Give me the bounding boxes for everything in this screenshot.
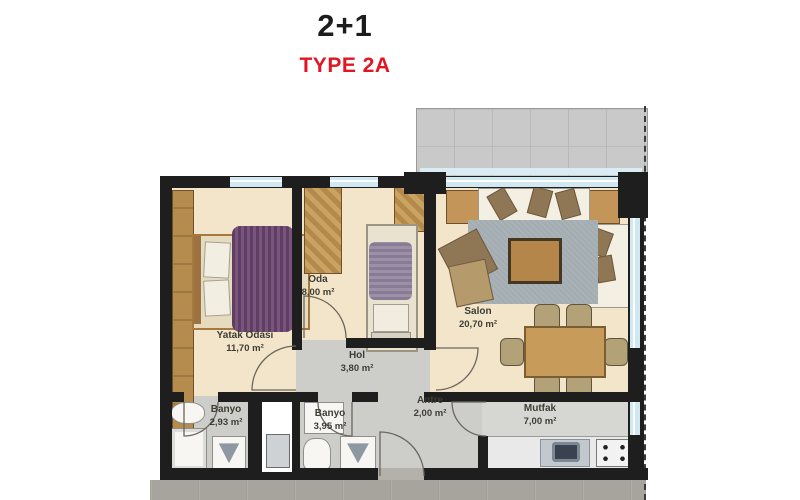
plan-type-label: TYPE 2A (255, 54, 435, 78)
label-oda: Oda 8,00 m² (288, 274, 348, 298)
room-area: 20,70 m² (446, 319, 510, 331)
room-area: 2,00 m² (398, 408, 462, 420)
dining-chair (604, 338, 628, 366)
pillow (203, 279, 231, 316)
wall-balcony-right-pier (618, 172, 648, 218)
sink-basin (347, 443, 369, 463)
window-bedroom (230, 177, 282, 187)
bathtub (171, 428, 207, 470)
room-name: Mutfak (524, 403, 556, 414)
pillow (203, 241, 231, 278)
bed-blanket (232, 226, 294, 332)
stove (596, 439, 632, 467)
window-kitchen (630, 402, 640, 435)
wall-bottom-right (424, 468, 648, 480)
wall-hall-bath (170, 392, 184, 402)
wall-antre-kitchen (478, 436, 488, 472)
label-banyo-large: Banyo 3,95 m² (294, 408, 366, 432)
bathroom-sink (340, 436, 376, 470)
oda-wardrobe (304, 186, 342, 274)
room-name: Hol (349, 350, 365, 361)
toilet (303, 438, 331, 470)
window-oda (330, 177, 378, 187)
window-salon-balcony (446, 177, 618, 187)
wall-oda-salon (424, 184, 436, 350)
toilet (212, 436, 246, 470)
side-table (446, 190, 480, 224)
side-table (586, 190, 620, 224)
label-salon: Salon 20,70 m² (446, 306, 510, 330)
room-area: 11,70 m² (185, 343, 305, 355)
room-area: 3,80 m² (327, 363, 387, 375)
dining-chair (500, 338, 524, 366)
wall-hall-bath (218, 392, 318, 402)
label-mutfak: Mutfak 7,00 m² (502, 403, 578, 427)
balcony-window-edge (420, 168, 642, 175)
room-area: 8,00 m² (288, 287, 348, 299)
wall-hall-bath (352, 392, 378, 402)
wall-left (160, 176, 172, 480)
room-name: Yatak Odası (217, 330, 274, 341)
room-name: Salon (464, 306, 491, 317)
single-bed-blanket (369, 242, 412, 300)
wall-bedroom-oda (292, 184, 302, 350)
coffee-table (508, 238, 562, 284)
room-name: Oda (308, 274, 327, 285)
bed-headboard (194, 236, 201, 324)
label-antre: Antre 2,00 m² (398, 395, 462, 419)
window-salon-right (630, 218, 640, 348)
label-banyo-small: Banyo 2,93 m² (190, 404, 262, 428)
floor-plan-page: 2+1 TYPE 2A (0, 0, 800, 500)
label-hol: Hol 3,80 m² (327, 350, 387, 374)
room-area: 2,93 m² (190, 417, 262, 429)
wall-oda-hol (346, 338, 424, 348)
service-shaft (266, 434, 290, 468)
entrance-threshold (378, 468, 424, 480)
room-name: Antre (417, 395, 443, 406)
room-name: Banyo (211, 404, 242, 415)
room-area: 7,00 m² (502, 416, 578, 428)
dining-table (524, 326, 606, 378)
label-yatak-odasi: Yatak Odası 11,70 m² (185, 330, 305, 354)
boundary-dashed-line (644, 106, 646, 500)
plan-title: 2+1 (255, 8, 435, 44)
room-name: Banyo (315, 408, 346, 419)
kitchen-sink-basin (552, 442, 580, 462)
outside-corridor (150, 480, 646, 500)
toilet-bowl (219, 443, 239, 463)
single-bed-pillow (373, 304, 409, 332)
room-area: 3,95 m² (294, 421, 366, 433)
